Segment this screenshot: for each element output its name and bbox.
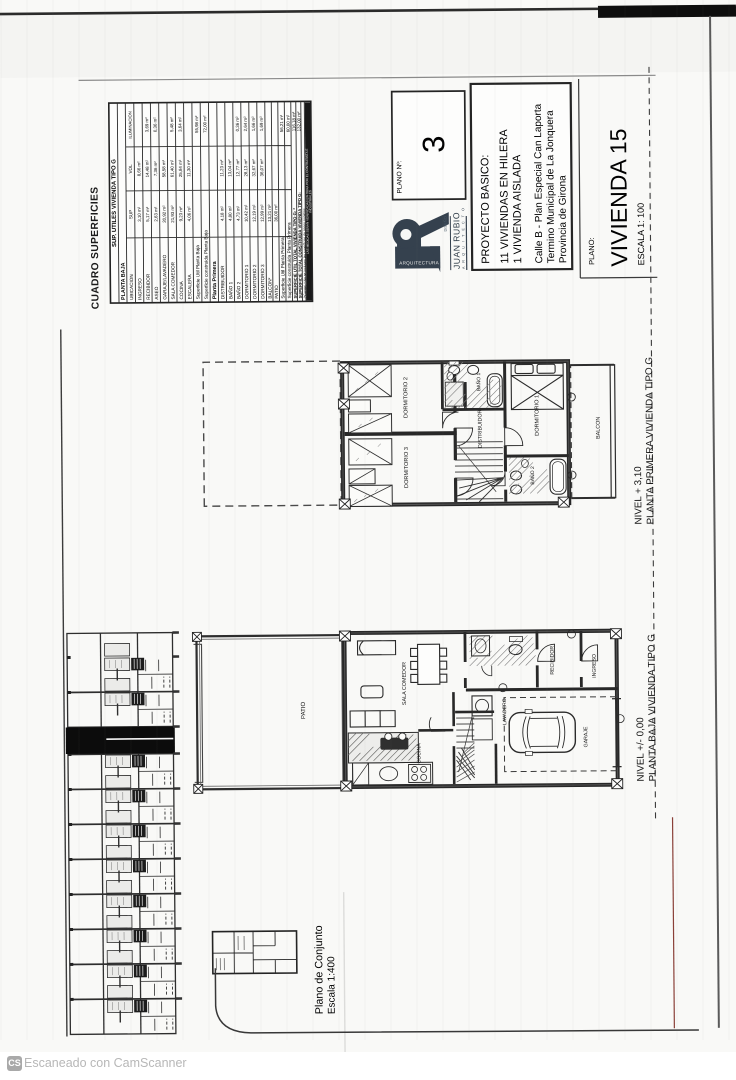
svg-text:DORMITORIO 3: DORMITORIO 3 [260, 264, 265, 299]
svg-text:3: 3 [416, 135, 451, 153]
svg-text:Plano de Conjunto: Plano de Conjunto [313, 925, 326, 1014]
svg-text:8,66 m²: 8,66 m² [136, 161, 141, 176]
svg-text:132,00 m²: 132,00 m² [296, 111, 301, 131]
svg-text:Calle B - Plan Especial Can La: Calle B - Plan Especial Can Laporta [533, 103, 545, 263]
svg-text:BAÑO 1: BAÑO 1 [227, 281, 233, 299]
svg-text:25,84 m²: 25,84 m² [178, 159, 183, 177]
svg-text:SUP: SUP [128, 210, 133, 219]
svg-text:11 VIVIENDAS EN HILERA: 11 VIVIENDAS EN HILERA [498, 129, 511, 264]
svg-text:11,30 m²: 11,30 m² [186, 159, 191, 177]
svg-text:32,67 m²: 32,67 m² [251, 159, 256, 177]
svg-text:3,10 m²: 3,10 m² [137, 206, 142, 221]
svg-text:61,40 m²: 61,40 m² [170, 159, 175, 177]
svg-text:ESCALERA: ESCALERA [187, 273, 192, 299]
svg-text:DORMITORIO 2: DORMITORIO 2 [252, 264, 257, 299]
svg-text:LAVADERO: LAVADERO [502, 698, 508, 725]
svg-text:12,19 m²: 12,19 m² [252, 204, 257, 222]
svg-text:Superficie construida Planta P: Superficie construida Planta Primera [286, 222, 292, 299]
svg-text:GARAJE/LAVADERO: GARAJE/LAVADERO [162, 254, 167, 299]
svg-text:INGRESO: INGRESO [592, 654, 598, 678]
svg-text:20,92 m²: 20,92 m² [162, 205, 167, 223]
svg-text:4,73 m²: 4,73 m² [236, 205, 241, 220]
svg-text:13,21 m²: 13,21 m² [267, 204, 272, 222]
svg-text:ESCALA 1: 100: ESCALA 1: 100 [636, 203, 647, 266]
svg-text:ARQUITECTURA: ARQUITECTURA [399, 260, 440, 265]
svg-text:72,00 m²: 72,00 m² [202, 115, 207, 133]
svg-text:DISTRIBUIDOR: DISTRIBUIDOR [477, 409, 483, 448]
svg-text:5,48 m²: 5,48 m² [169, 117, 174, 132]
svg-text:56,21 m²: 56,21 m² [279, 114, 284, 132]
svg-text:12,77 m²: 12,77 m² [235, 159, 240, 177]
svg-text:55,98 m²: 55,98 m² [194, 115, 199, 133]
svg-text:RECIBIDOR: RECIBIDOR [550, 646, 556, 675]
svg-text:Termino Municipal de La Jonque: Termino Municipal de La Jonquera [545, 110, 557, 263]
svg-text:VOL: VOL [128, 164, 133, 174]
svg-text:14,48 m²: 14,48 m² [145, 160, 150, 178]
svg-text:COCINA: COCINA [179, 280, 184, 299]
svg-text:0,36 m²: 0,36 m² [153, 117, 158, 132]
svg-text:Escala 1:400: Escala 1:400 [326, 956, 338, 1014]
svg-text:A R Q U I T E C T O: A R Q U I T E C T O [461, 206, 466, 269]
svg-text:VIVIENDA 15: VIVIENDA 15 [605, 128, 632, 266]
svg-text:12,99 m²: 12,99 m² [260, 204, 265, 222]
svg-text:0,36 m²: 0,36 m² [235, 116, 240, 131]
svg-text:3,64 m²: 3,64 m² [177, 116, 182, 131]
svg-text:BAÑO 2: BAÑO 2 [529, 466, 536, 485]
svg-text:BALCON*: BALCON* [267, 277, 272, 298]
svg-text:ILUMINACION: ILUMINACION [128, 111, 133, 139]
svg-text:60,00 m²: 60,00 m² [286, 114, 291, 132]
svg-text:36,07 m²: 36,07 m² [259, 159, 264, 177]
svg-text:10,42 m²: 10,42 m² [244, 204, 249, 222]
svg-text:INGRESO: INGRESO [137, 278, 142, 300]
svg-text:2,63 m²: 2,63 m² [153, 206, 158, 221]
svg-text:DORMITORIO 2: DORMITORIO 2 [403, 377, 409, 418]
svg-text:PLANO:: PLANO: [587, 237, 596, 265]
svg-text:4,06 m²: 4,06 m² [187, 206, 192, 221]
svg-text:4,18 m²: 4,18 m² [220, 206, 225, 221]
svg-text:NIVEL + 3,10: NIVEL + 3,10 [633, 466, 645, 525]
svg-text:21,93 m²: 21,93 m² [170, 205, 175, 223]
svg-text:PLANTA BAJA: PLANTA BAJA [121, 262, 127, 300]
svg-text:7,36 m²: 7,36 m² [153, 161, 158, 176]
svg-text:2,64 m²: 2,64 m² [243, 116, 248, 131]
svg-text:Superficie Util Planta Baja: Superficie Util Planta Baja [195, 245, 200, 300]
svg-text:UBICACION: UBICACION [129, 274, 134, 300]
svg-text:SALA COMEDOR: SALA COMEDOR [402, 662, 408, 705]
svg-text:BAÑO 2: BAÑO 2 [235, 281, 241, 299]
svg-text:Provincia de Girona: Provincia de Girona [557, 175, 569, 263]
svg-text:1,69 m²: 1,69 m² [259, 116, 264, 131]
svg-text:GARAJE: GARAJE [583, 726, 589, 747]
svg-text:JUAN RUBIO: JUAN RUBIO [451, 212, 461, 269]
svg-text:11,23 m²: 11,23 m² [219, 159, 224, 177]
svg-text:BAÑO 1: BAÑO 1 [475, 372, 482, 391]
svg-text:13,04 m²: 13,04 m² [227, 159, 232, 177]
svg-text:SALA COMEDOR: SALA COMEDOR [170, 261, 175, 299]
svg-text:DORMITORIO 1: DORMITORIO 1 [534, 395, 540, 436]
svg-text:36,00 m²: 36,00 m² [273, 204, 278, 222]
svg-text:COCINA: COCINA [416, 743, 422, 764]
svg-text:Superficie construida Planta B: Superficie construida Planta Baja [203, 230, 209, 299]
svg-text:PLANTA BAJA VIVIENDA TIPO G: PLANTA BAJA VIVIENDA TIPO G [646, 634, 658, 781]
svg-text:9,23 m²: 9,23 m² [178, 206, 183, 221]
svg-text:RECIBIDOR: RECIBIDOR [146, 273, 151, 300]
svg-text:DISEÑO: DISEÑO [443, 216, 448, 231]
svg-text:1 VIVIENDA AISLADA: 1 VIVIENDA AISLADA [511, 154, 524, 264]
svg-text:BALCON: BALCON [596, 417, 602, 439]
svg-text:ASEO: ASEO [154, 286, 159, 299]
svg-text:5,17 m²: 5,17 m² [145, 206, 150, 221]
svg-text:4,80 m²: 4,80 m² [228, 206, 233, 221]
svg-text:28,13 m²: 28,13 m² [243, 159, 248, 177]
svg-text:Planta Primera: Planta Primera [212, 260, 218, 299]
svg-text:NIVEL +/- 0,00: NIVEL +/- 0,00 [635, 717, 647, 782]
svg-text:PLANTA PRIMERA VIVIENDA TIPO G: PLANTA PRIMERA VIVIENDA TIPO G [644, 357, 656, 524]
svg-text:CUADRO SUPERFICIES: CUADRO SUPERFICIES [90, 186, 102, 309]
svg-text:SUP. UTILES VIVIENDA TIPO G: SUP. UTILES VIVIENDA TIPO G [111, 159, 118, 247]
svg-text:Superficie Util Planta Primera: Superficie Util Planta Primera [280, 237, 286, 299]
svg-text:PROYECTO BASICO:: PROYECTO BASICO: [479, 155, 492, 264]
svg-text:DORMITORIO 3: DORMITORIO 3 [404, 447, 410, 488]
svg-text:1,66 m²: 1,66 m² [251, 116, 256, 131]
svg-text:58,58 m²: 58,58 m² [161, 159, 166, 177]
svg-text:DISTRIBUIDOR: DISTRIBUIDOR [220, 265, 225, 299]
svg-text:PLANO Nº:: PLANO Nº: [396, 160, 403, 193]
svg-text:PATIO: PATIO [301, 702, 307, 719]
svg-text:PATIO: PATIO [274, 285, 279, 299]
svg-text:INDUSTRIALES: INDUSTRIALES [308, 190, 312, 213]
svg-text:3,69 m²: 3,69 m² [144, 117, 149, 132]
svg-text:DORMITORIO 1: DORMITORIO 1 [244, 264, 249, 299]
